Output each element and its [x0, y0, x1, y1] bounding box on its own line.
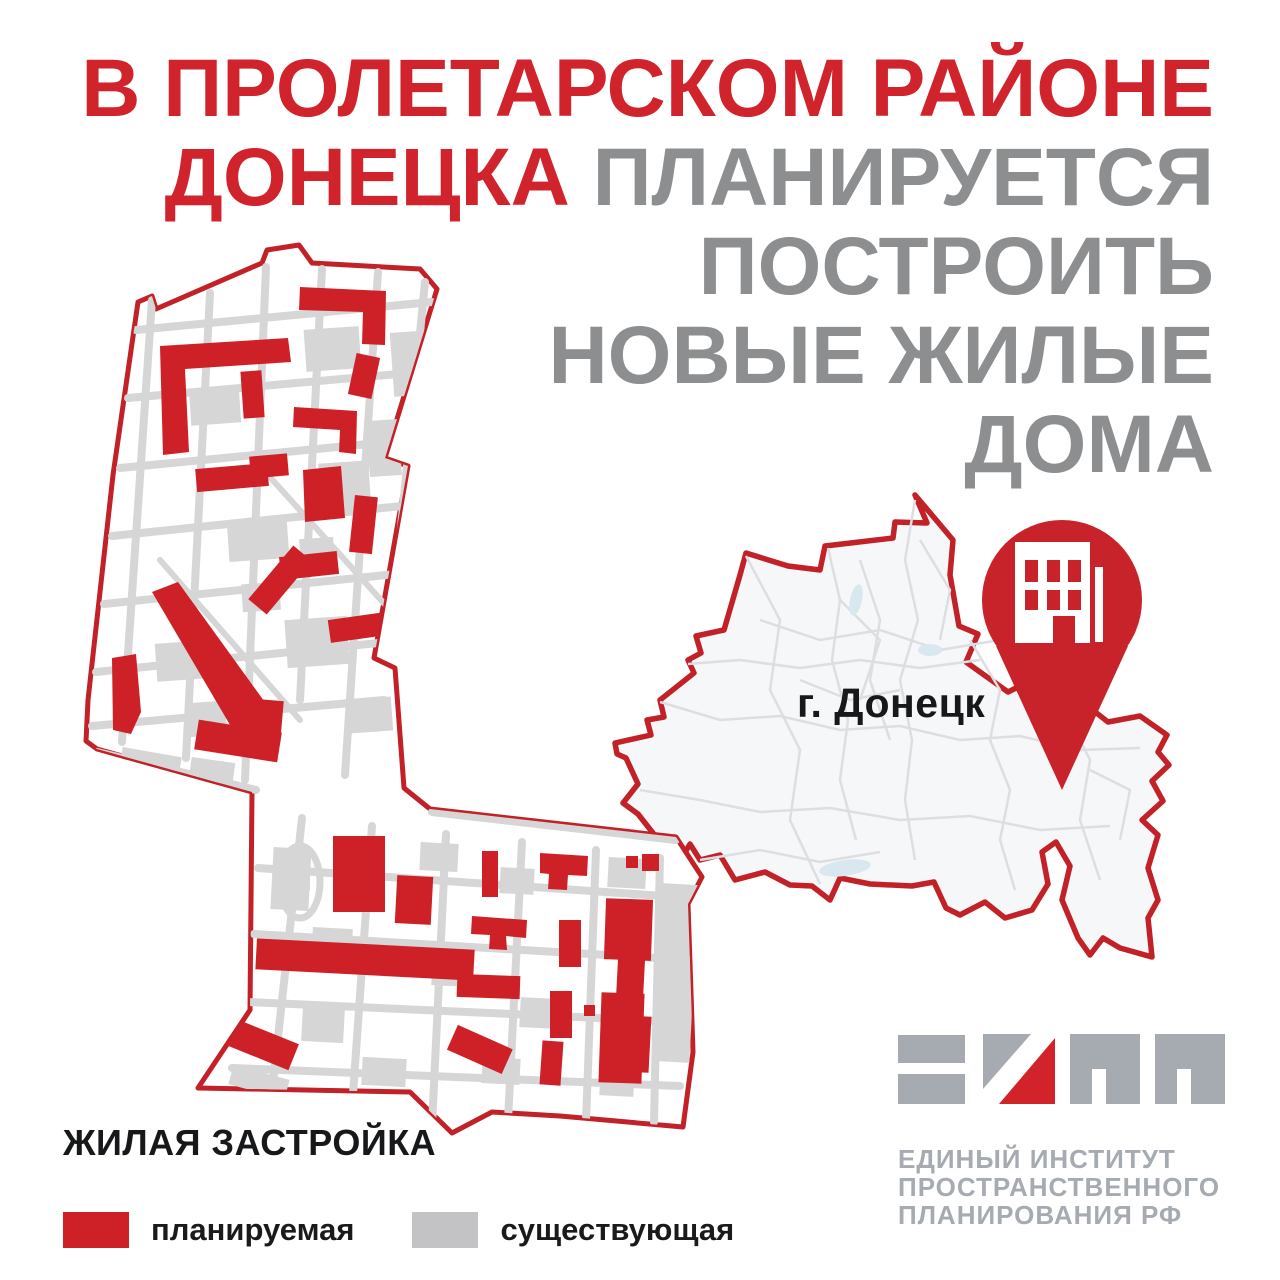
headline-line-1: В ПРОЛЕТАРСКОМ РАЙОНЕ: [81, 44, 1214, 133]
eipp-logo-mark-icon: [898, 1034, 1228, 1104]
legend-title: ЖИЛАЯ ЗАСТРОЙКА: [63, 1122, 763, 1164]
headline-text-red: ДОНЕЦКА: [165, 132, 570, 223]
legend-label-planned: планируемая: [151, 1212, 354, 1248]
building-icon: [1015, 542, 1103, 643]
city-label: г. Донецк: [797, 680, 985, 727]
logo-text-line: ПРОСТРАНСТВЕННОГО: [898, 1173, 1238, 1201]
headline-text-gray: ДОМА: [964, 399, 1214, 490]
institute-logo: ЕДИНЫЙ ИНСТИТУТ ПРОСТРАНСТВЕННОГО ПЛАНИР…: [898, 1034, 1238, 1229]
headline-text-gray: ПОСТРОИТЬ: [699, 221, 1214, 312]
legend-label-existing: существующая: [500, 1212, 734, 1248]
map-legend: ЖИЛАЯ ЗАСТРОЙКА планируемая существующая: [63, 1122, 763, 1248]
logo-text: ЕДИНЫЙ ИНСТИТУТ ПРОСТРАНСТВЕННОГО ПЛАНИР…: [898, 1145, 1238, 1229]
legend-swatch-existing: [412, 1212, 478, 1248]
headline-line-5: ДОМА: [964, 400, 1214, 489]
infographic-poster: В ПРОЛЕТАРСКОМ РАЙОНЕ ДОНЕЦКА ПЛАНИРУЕТС…: [0, 0, 1280, 1280]
legend-swatch-planned: [63, 1212, 129, 1248]
headline-line-3: ПОСТРОИТЬ: [699, 222, 1214, 311]
logo-text-line: ПЛАНИРОВАНИЯ РФ: [898, 1201, 1238, 1229]
headline-line-4: НОВЫЕ ЖИЛЫЕ: [548, 311, 1214, 400]
headline-text-gray: ПЛАНИРУЕТСЯ: [593, 132, 1214, 223]
headline-line-2: ДОНЕЦКА ПЛАНИРУЕТСЯ: [165, 133, 1214, 222]
logo-text-line: ЕДИНЫЙ ИНСТИТУТ: [898, 1145, 1238, 1173]
headline-text-gray: НОВЫЕ ЖИЛЫЕ: [548, 310, 1214, 401]
headline: В ПРОЛЕТАРСКОМ РАЙОНЕ ДОНЕЦКА ПЛАНИРУЕТС…: [44, 44, 1214, 489]
headline-text-red: В ПРОЛЕТАРСКОМ РАЙОНЕ: [81, 43, 1214, 134]
